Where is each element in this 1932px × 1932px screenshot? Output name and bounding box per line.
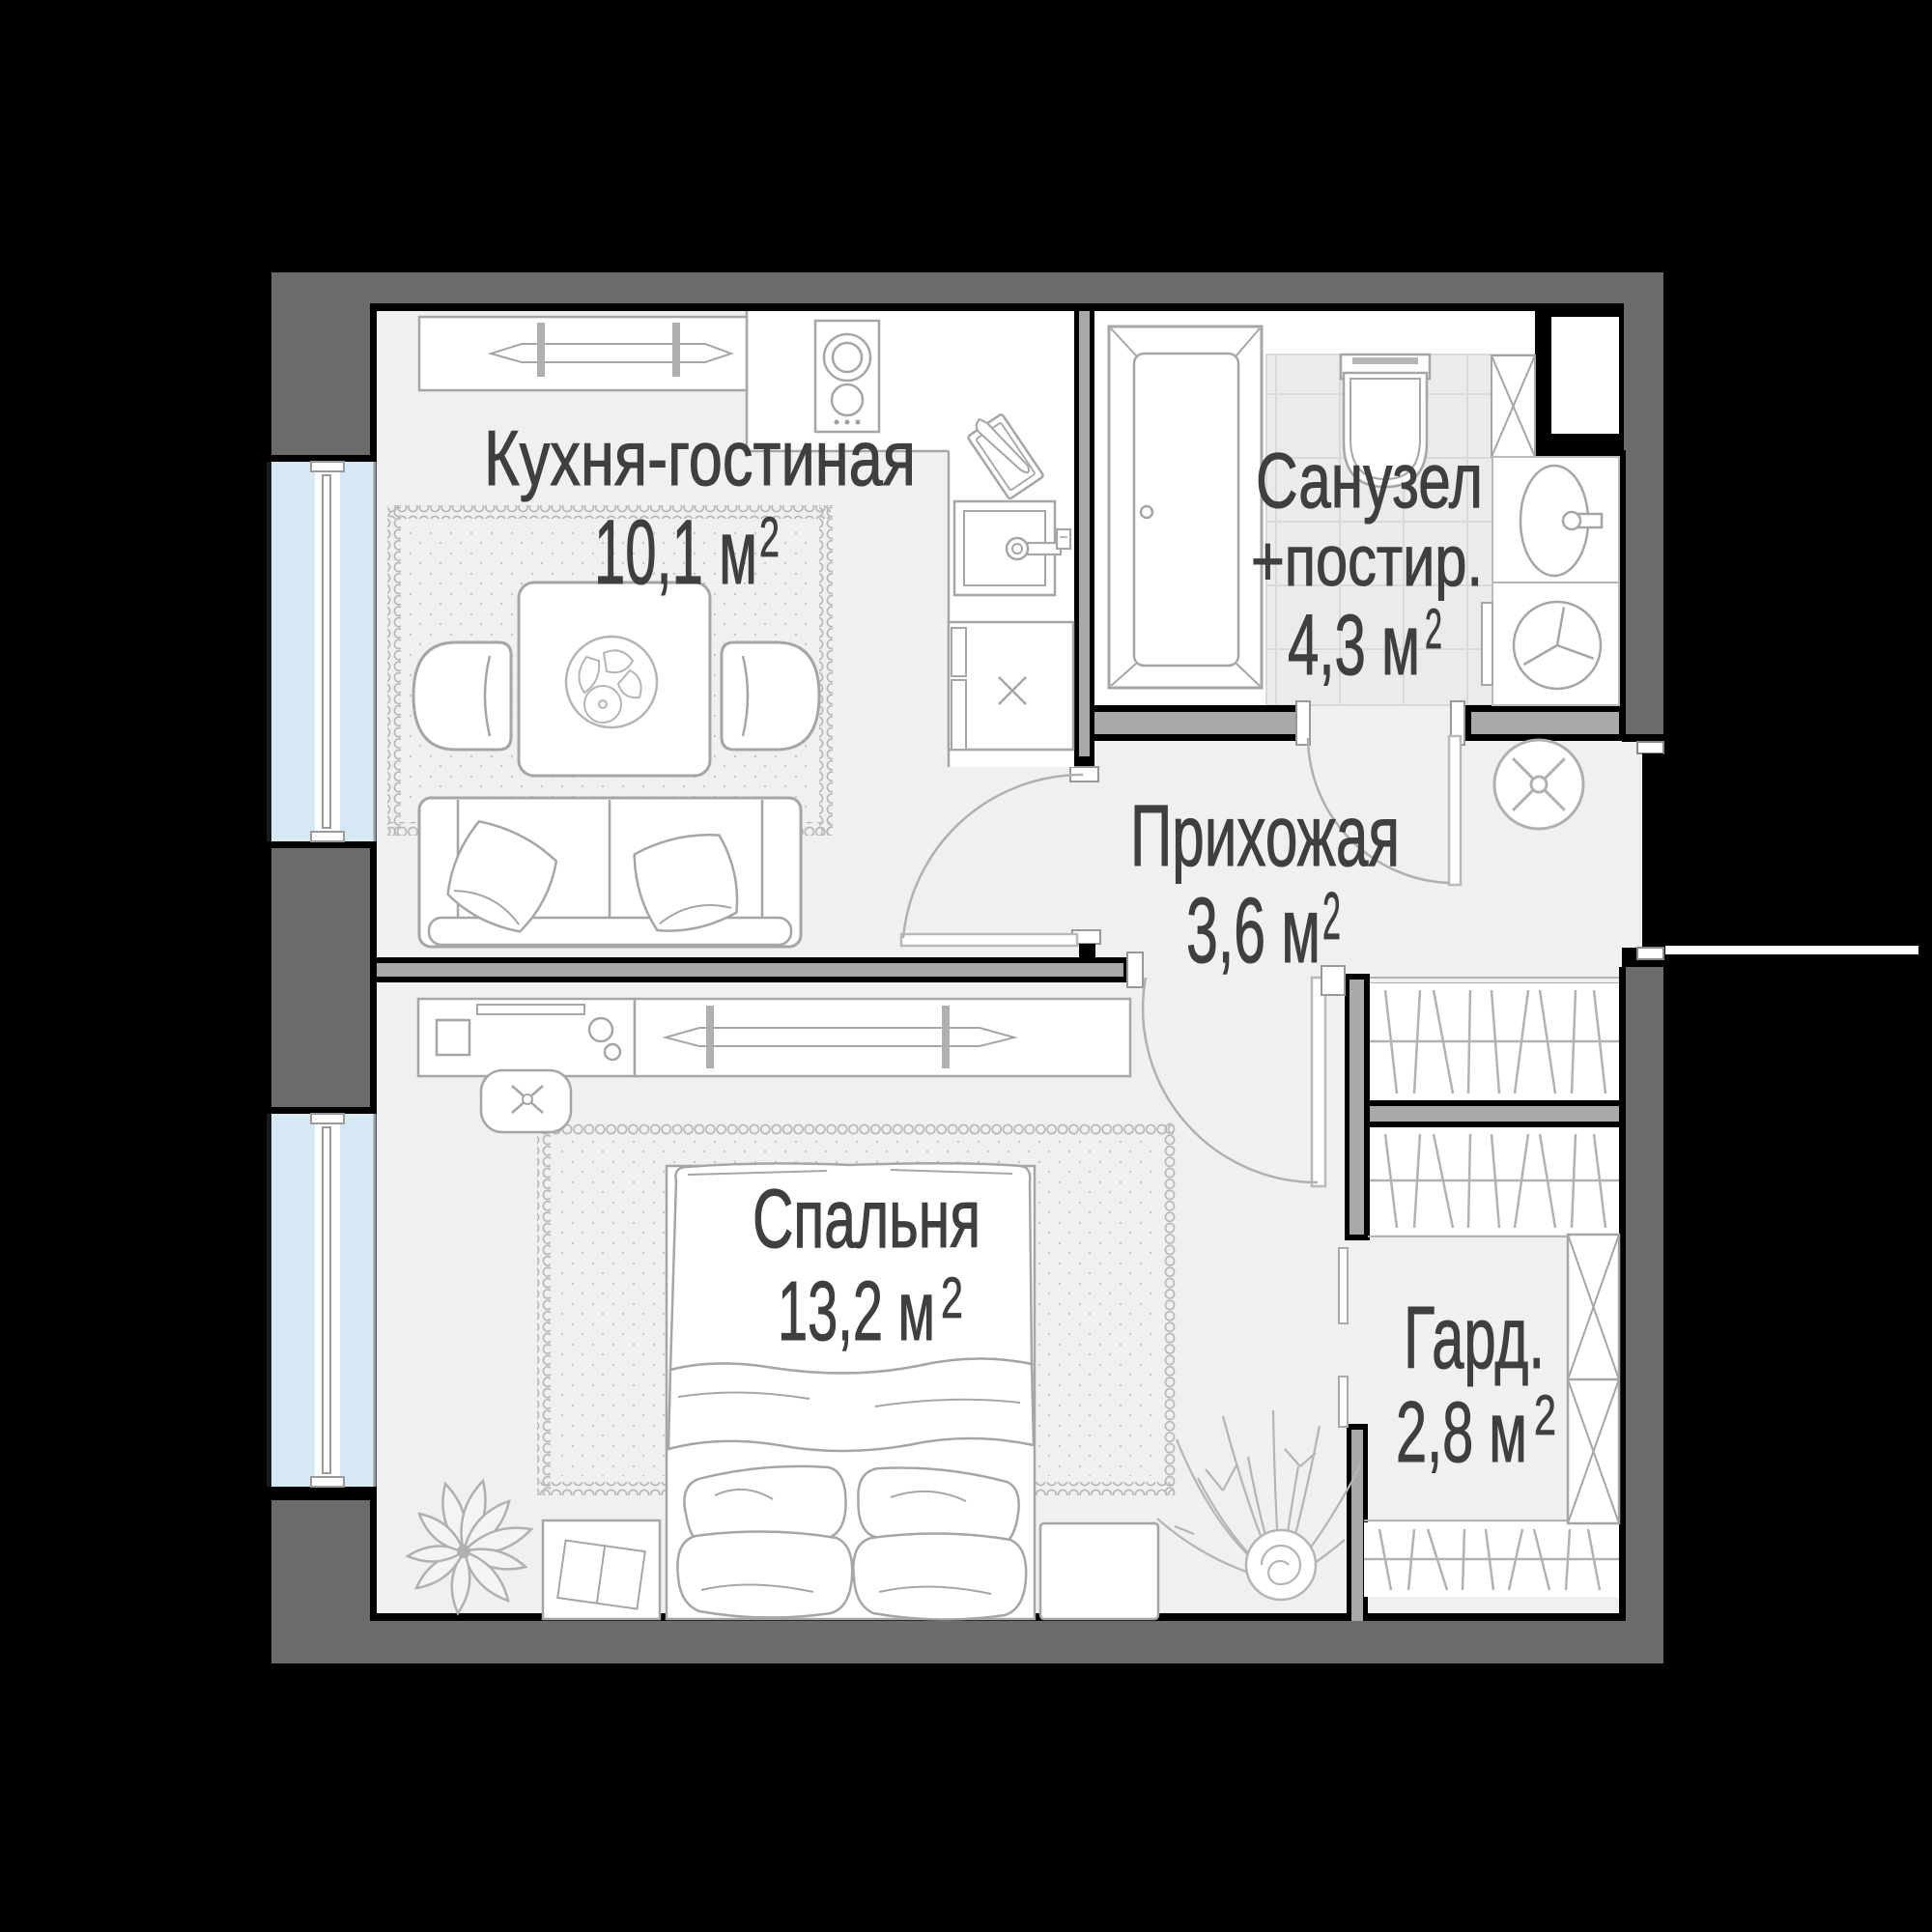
- svg-text:2: 2: [1322, 878, 1341, 953]
- svg-text:Санузел: Санузел: [1256, 438, 1483, 525]
- svg-text:4,3 м: 4,3 м: [1288, 596, 1420, 693]
- svg-text:2: 2: [941, 1265, 963, 1330]
- svg-text:Прихожая: Прихожая: [1130, 788, 1400, 885]
- svg-text:2: 2: [1425, 598, 1442, 661]
- svg-text:+постир.: +постир.: [1251, 521, 1483, 601]
- svg-text:13,2 м: 13,2 м: [778, 1264, 935, 1358]
- svg-text:Спальня: Спальня: [753, 1173, 980, 1265]
- svg-text:3,6 м: 3,6 м: [1186, 879, 1321, 982]
- svg-text:Гард.: Гард.: [1404, 1290, 1545, 1387]
- svg-text:2: 2: [759, 506, 780, 569]
- svg-text:Кухня-гостиная: Кухня-гостиная: [484, 415, 916, 502]
- svg-text:10,1 м: 10,1 м: [594, 501, 757, 604]
- svg-text:2: 2: [1534, 1384, 1556, 1447]
- svg-text:2,8 м: 2,8 м: [1396, 1383, 1527, 1480]
